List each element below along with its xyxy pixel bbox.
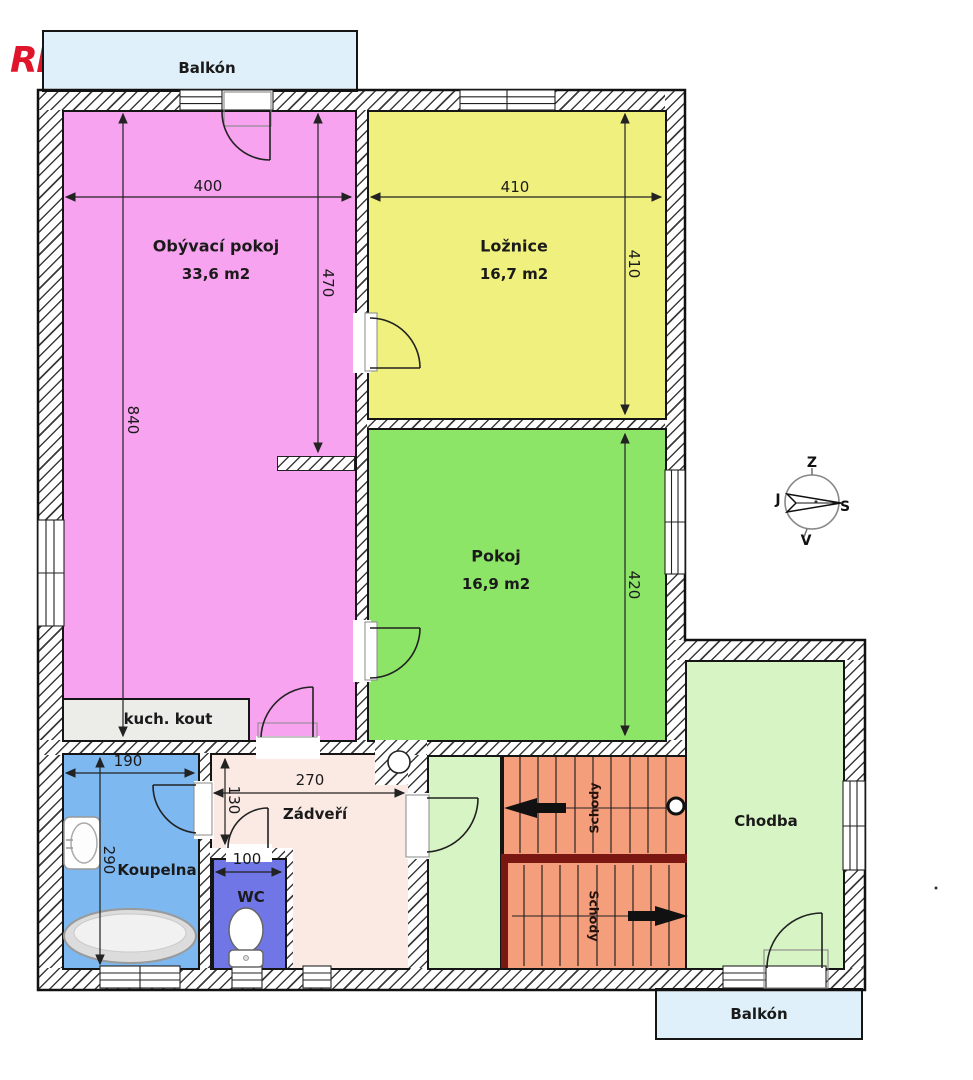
opening-bathroom-door <box>194 781 214 839</box>
bedroom-label: Ložnice <box>480 237 548 256</box>
dim-840: 840 <box>124 406 142 435</box>
dim-410-height: 410 <box>625 250 643 279</box>
dim-410-width: 410 <box>501 178 530 196</box>
wall-chodba-top <box>665 640 865 660</box>
balcony-top-label: Balkón <box>178 59 235 77</box>
wall-stairs-column <box>665 660 685 740</box>
bedroom-area: 16,7 m2 <box>480 265 548 283</box>
stray-dot <box>935 887 938 890</box>
room-wc <box>212 858 287 970</box>
bathroom-label: Koupelna <box>117 861 196 879</box>
room-living <box>62 110 357 742</box>
wall-stub <box>277 456 355 471</box>
wc-label: WC <box>237 888 265 906</box>
dim-400: 400 <box>194 177 223 195</box>
floor-plan: RE/MAX <box>0 0 973 1080</box>
wall-chodba-right <box>843 660 865 968</box>
dim-470: 470 <box>319 269 337 298</box>
wall-right-upper <box>665 90 685 640</box>
pokoj-area: 16,9 m2 <box>462 575 530 593</box>
living-room-area: 33,6 m2 <box>182 265 250 283</box>
pokoj-label: Pokoj <box>471 547 520 566</box>
stairs-label-lower: Schody <box>587 891 602 942</box>
opening-bedroom-door <box>353 313 371 373</box>
living-room-label: Obývací pokoj <box>153 237 279 256</box>
dim-290: 290 <box>100 846 118 875</box>
wall-bottom <box>38 968 865 990</box>
stairs-label-upper: Schody <box>587 783 602 834</box>
compass-icon <box>785 468 841 537</box>
dim-130: 130 <box>225 786 243 815</box>
compass-letter-bottom: V <box>801 533 812 549</box>
wall-frontdoor-lower <box>408 857 427 968</box>
opening-living-entry-door <box>256 736 320 759</box>
opening-pokoj-door <box>353 620 371 682</box>
compass-letter-right: S <box>840 499 850 515</box>
room-hall-strip <box>427 755 502 970</box>
entry-label: Zádveří <box>283 805 347 823</box>
kitchen-corner-label: kuch. kout <box>124 710 213 728</box>
dim-190: 190 <box>114 752 143 770</box>
compass-letter-left: J <box>775 492 780 508</box>
compass-letter-top: Z <box>807 455 817 471</box>
dim-420: 420 <box>625 571 643 600</box>
wall-left <box>38 110 62 968</box>
balcony-bottom-label: Balkón <box>730 1005 787 1023</box>
opening-front-door <box>406 793 429 859</box>
chodba-label: Chodba <box>734 812 798 830</box>
dim-270: 270 <box>296 771 325 789</box>
dim-100: 100 <box>233 850 262 868</box>
stairs-divider <box>501 854 687 863</box>
wall-frontdoor-upper <box>408 755 427 797</box>
stairs-left-edge <box>501 860 508 968</box>
wall-top <box>38 90 685 110</box>
